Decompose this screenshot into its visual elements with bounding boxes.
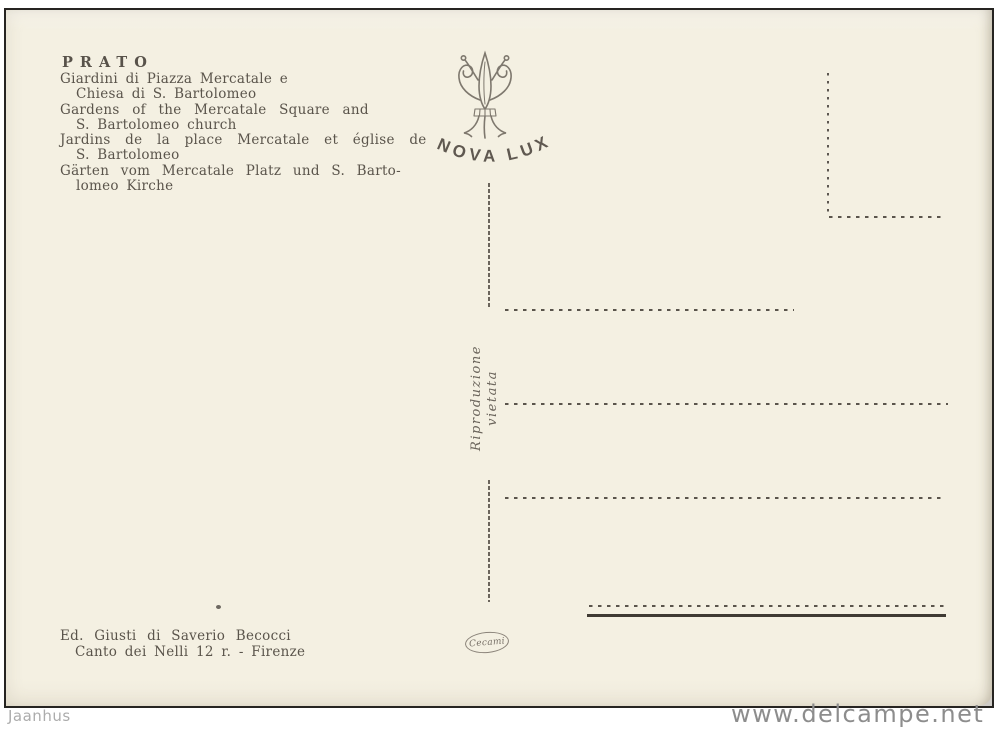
watermark-left: Jaanhus xyxy=(8,707,71,725)
publisher-line-1: Ed. Giusti di Saverio Becocci xyxy=(60,629,305,645)
printer-logo: Cecami xyxy=(464,630,510,655)
brand-label: NOVA LUX xyxy=(434,132,554,166)
caption-line-it-2: Chiesa di S. Bartolomeo xyxy=(76,87,440,102)
reproduction-notice: Riproduzione vietata xyxy=(469,315,485,481)
brand-arc-text: NOVA LUX xyxy=(430,132,570,184)
address-line-2 xyxy=(505,403,948,405)
address-line-4 xyxy=(589,605,946,607)
caption-line-de-2: lomeo Kirche xyxy=(76,179,440,194)
divider-line-bottom xyxy=(488,480,490,602)
paper-speck xyxy=(216,605,221,609)
stamp-box-bottom-edge xyxy=(829,216,946,218)
publisher-line-2: Canto dei Nelli 12 r. - Firenze xyxy=(75,645,305,661)
watermark-right: www.delcampe.net xyxy=(731,700,984,728)
postcard-title: PRATO xyxy=(62,54,154,71)
caption-line-fr-1: Jardins de la place Mercatale et église … xyxy=(60,133,440,148)
caption-line-en-2: S. Bartolomeo church xyxy=(76,118,440,133)
divider-line-top xyxy=(488,183,490,309)
postcard-back: PRATO Giardini di Piazza Mercatale e Chi… xyxy=(6,10,992,706)
svg-text:NOVA LUX: NOVA LUX xyxy=(434,132,554,166)
address-underline xyxy=(587,614,946,617)
caption-block: Giardini di Piazza Mercatale e Chiesa di… xyxy=(60,72,440,194)
caption-line-it-1: Giardini di Piazza Mercatale e xyxy=(60,72,440,87)
caption-line-fr-2: S. Bartolomeo xyxy=(76,148,440,163)
address-line-3 xyxy=(505,497,946,499)
stamp-box-left-edge xyxy=(827,73,829,216)
printer-logo-text: Cecami xyxy=(469,636,506,649)
fleur-de-lis-icon xyxy=(452,50,518,142)
publisher-credit: Ed. Giusti di Saverio Becocci Canto dei … xyxy=(60,629,305,660)
caption-line-en-1: Gardens of the Mercatale Square and xyxy=(60,103,440,118)
address-line-1 xyxy=(505,309,794,311)
postcard-scan-frame: PRATO Giardini di Piazza Mercatale e Chi… xyxy=(4,8,994,708)
caption-line-de-1: Gärten vom Mercatale Platz und S. Barto- xyxy=(60,164,440,179)
